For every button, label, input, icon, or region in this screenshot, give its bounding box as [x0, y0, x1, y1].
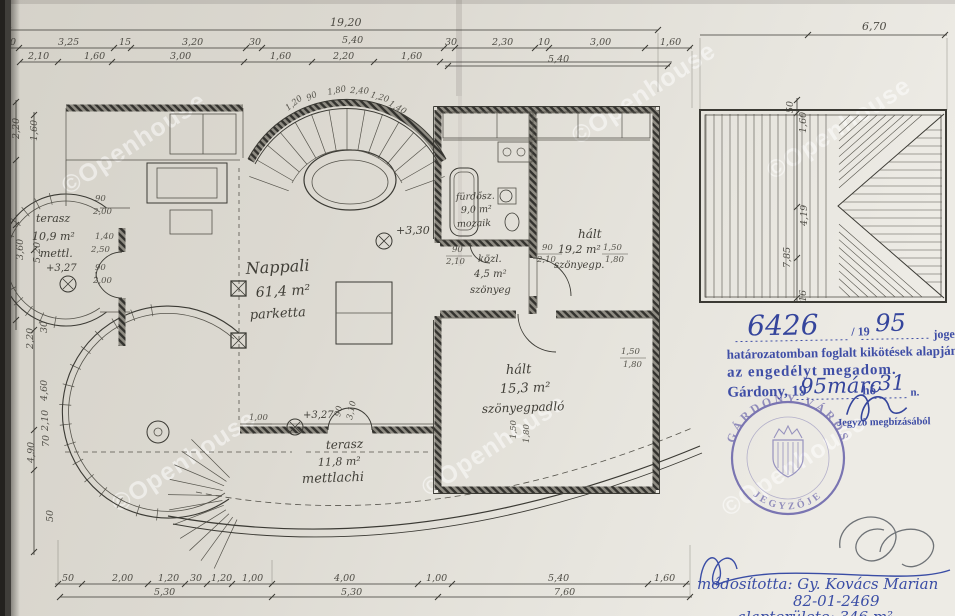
room-area-halo1: 19,2 m² [558, 243, 601, 256]
dim-label: 1,60 [660, 37, 681, 48]
dim-label: 90 [542, 243, 553, 253]
dim-label: 10 [538, 37, 550, 48]
dim-label: 2,10 [445, 257, 466, 267]
room-area-furdo: 9,0 m² [461, 204, 493, 216]
modified-by-note: módosította: Gy. Kovács Marian [697, 575, 938, 593]
level-terasz2: +3,27 [303, 410, 334, 421]
dim-label: 5,30 [154, 587, 175, 598]
room-area-halo2: 15,3 m² [500, 380, 551, 397]
dim-label: 5,40 [548, 54, 569, 65]
stamp-year: 95 [875, 309, 906, 338]
dim-label: 4,90 [26, 442, 37, 464]
dim-total-left: 19,20 [330, 16, 362, 29]
dim-label: 1,80 [623, 360, 643, 370]
dim-label: 30 [190, 573, 202, 584]
dim-label: 1,20 [158, 573, 179, 584]
dim-label: 1,50 [509, 419, 519, 439]
dim-label: 3,00 [590, 37, 611, 48]
dim-label: 1,60 [401, 51, 422, 62]
dim-label: 1,60 [29, 120, 40, 141]
dim-label: 3,25 [58, 37, 79, 48]
dim-label: 1,80 [522, 423, 532, 443]
dim-label: 1,00 [426, 573, 447, 584]
dim-label: 90 [95, 194, 106, 204]
dim-label: 50 [785, 101, 796, 113]
dim-label: 1,50 [621, 347, 641, 357]
dim-label: 2,10 [27, 51, 49, 62]
dim-label: 2,10 [40, 410, 51, 432]
room-area-nappali: 61,4 m² [255, 282, 311, 301]
room-label-halo1: hált [578, 227, 602, 241]
dim-label: 3,20 [182, 37, 203, 48]
stamp-ho: hó [862, 382, 876, 397]
room-floor-terasz2: mettlachi [302, 470, 365, 487]
dim-label: 2,20 [332, 51, 354, 62]
dim-label: 2,00 [92, 276, 113, 286]
dim-label: 1,00 [249, 413, 269, 423]
dim-label: 1,60 [270, 51, 291, 62]
stamp-per: / 19 [850, 324, 870, 338]
room-floor-halo2: szönyegpadló [482, 399, 565, 416]
room-label-nappali: Nappali [244, 256, 310, 278]
room-floor-nappali: parketta [249, 305, 306, 323]
dim-label: 1,80 [605, 255, 625, 265]
room-label-terasz2: terasz [326, 437, 364, 452]
dim-label: 50 [45, 510, 56, 522]
dim-label: 70 [41, 435, 52, 447]
dim-total-right: 6,70 [862, 20, 887, 33]
level-bay: +3,30 [396, 224, 430, 237]
room-floor-halo1: szönyegp. [554, 260, 604, 271]
scanned-floorplan-document: ©Openhouse©Openhouse©Openhouse©Openhouse… [0, 0, 955, 616]
scan-edge-shadow [11, 0, 20, 616]
room-area-terasz1: 10,9 m² [32, 230, 75, 243]
dim-label: 2,00 [111, 573, 133, 584]
room-floor-terasz1: mettl. [40, 247, 73, 260]
floorplan-canvas: ©Openhouse©Openhouse©Openhouse©Openhouse… [0, 0, 955, 616]
room-floor-kozl: szönyeg [470, 285, 511, 296]
dim-label: 16 [798, 290, 809, 302]
dim-label: 2,50 [90, 245, 111, 255]
dim-label: 1,60 [84, 51, 105, 62]
cut-off-note: alapterülete: 346 m² [737, 608, 893, 616]
scan-edge-dark [0, 0, 5, 616]
dim-label: 30 [445, 37, 457, 48]
dim-label: 3,00 [170, 51, 191, 62]
stamp-day: 31 [878, 371, 905, 395]
dim-label: 2,20 [25, 328, 36, 350]
dim-label: 5,30 [341, 587, 362, 598]
dim-label: 4,60 [39, 380, 50, 402]
room-floor-furdo: mozaik [457, 218, 492, 230]
dim-label: 4,00 [333, 573, 355, 584]
dim-label: 5,40 [548, 573, 569, 584]
dim-label: 1,40 [95, 232, 115, 242]
dim-label: 1,50 [603, 243, 623, 253]
stamp-legal-word: jogerős [932, 327, 955, 342]
stamp-n: n. [910, 386, 919, 398]
stamp-case-number: 6426 [747, 308, 819, 342]
dim-label: 7,60 [554, 587, 575, 598]
scan-top-shadow [0, 0, 955, 4]
room-label-halo2: hált [506, 362, 533, 378]
dim-label: 1,00 [242, 573, 263, 584]
room-area-terasz2: 11,8 m² [318, 455, 361, 469]
room-label-kozl: közl. [478, 254, 502, 265]
dim-label: 15 [119, 37, 131, 48]
dim-label: 1,20 [211, 573, 232, 584]
level-terasz1: +3,27 [46, 263, 77, 274]
dim-label: 4,19 [799, 205, 810, 227]
room-area-kozl: 4,5 m² [473, 269, 507, 280]
room-label-furdo: fürdősz. [455, 191, 495, 203]
room-label-terasz1: terasz [36, 212, 70, 225]
dim-label: 2,30 [491, 37, 513, 48]
dim-label: 7,85 [782, 247, 793, 268]
dim-label: 2,40 [349, 86, 370, 97]
dim-label: 1,60 [654, 573, 675, 584]
dim-label: 30 [249, 37, 261, 48]
dim-label: 5,40 [342, 35, 363, 46]
dim-label: 50 [62, 573, 74, 584]
stamp-delegate: Jegyző megbízásából [837, 416, 931, 429]
